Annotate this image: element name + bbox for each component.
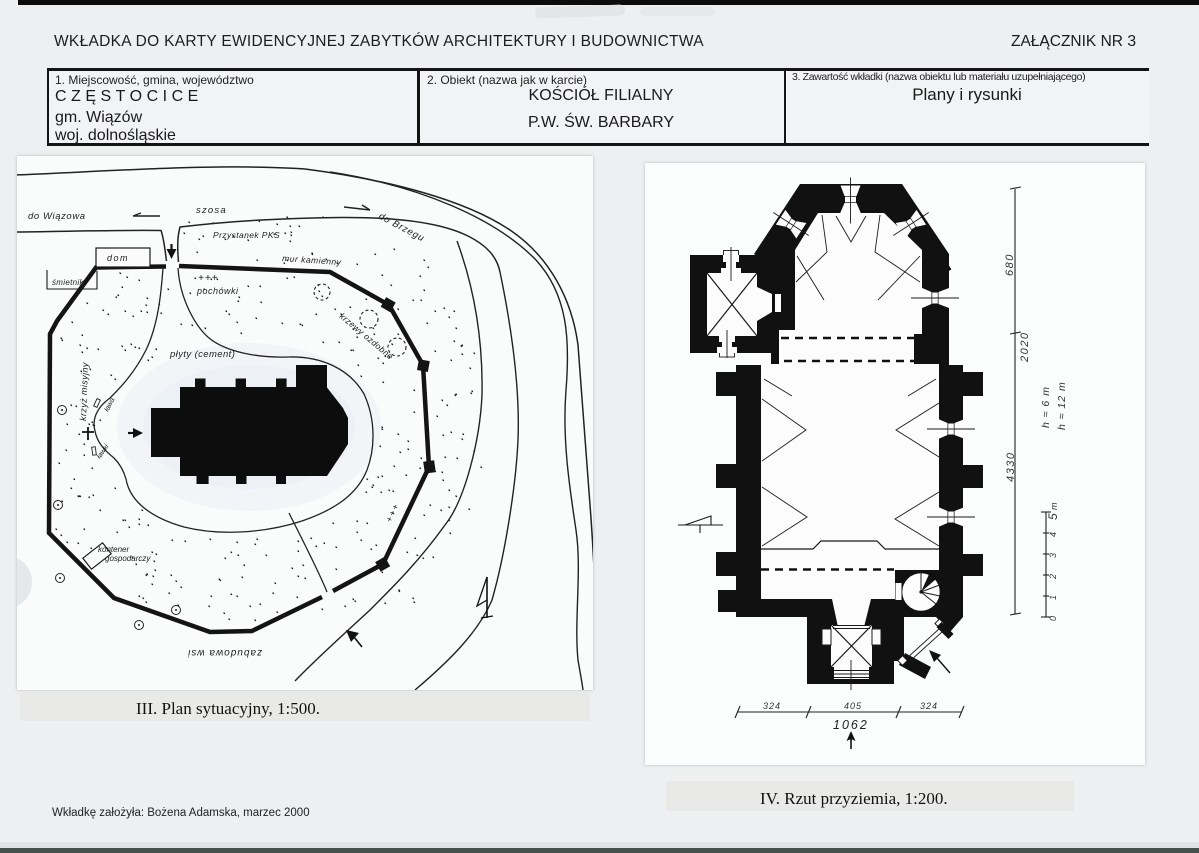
svg-text:0: 0 [1048, 616, 1058, 621]
svg-text:2: 2 [1048, 574, 1058, 580]
svg-text:405: 405 [844, 701, 862, 711]
svg-text:mur kamienny: mur kamienny [282, 253, 342, 267]
svg-text:szosa: szosa [196, 205, 227, 216]
svg-text:680: 680 [1004, 253, 1016, 276]
svg-text:zabudowa wsi: zabudowa wsi [187, 647, 263, 658]
svg-text:1062: 1062 [833, 718, 869, 732]
svg-text:1: 1 [1048, 595, 1058, 600]
svg-text:do Wiązowa: do Wiązowa [28, 211, 86, 222]
svg-text:5 m: 5 m [1046, 502, 1060, 520]
svg-text:+++: +++ [198, 273, 219, 284]
svg-text:324: 324 [763, 701, 781, 711]
svg-text:krzewy ozdobne: krzewy ozdobne [338, 311, 396, 362]
svg-text:4330: 4330 [1005, 452, 1017, 482]
svg-text:do Brzegu: do Brzegu [377, 211, 427, 244]
svg-text:pochówki: pochówki [196, 286, 239, 296]
svg-text:4: 4 [1048, 532, 1058, 537]
svg-text:h ≈ 6 m: h ≈ 6 m [1040, 386, 1052, 428]
svg-text:3: 3 [1048, 553, 1058, 558]
svg-text:2020: 2020 [1019, 332, 1031, 363]
svg-text:Przystanek PKS: Przystanek PKS [213, 230, 280, 240]
svg-text:gospodarczy: gospodarczy [105, 554, 151, 563]
svg-text:kontener: kontener [98, 545, 129, 554]
svg-text:ławki: ławki [96, 443, 111, 460]
svg-text:śmietnik: śmietnik [52, 278, 84, 287]
svg-text:324: 324 [920, 701, 938, 711]
svg-text:h ≈ 12 m: h ≈ 12 m [1056, 381, 1068, 430]
svg-text:dom: dom [107, 253, 129, 263]
svg-text:płyty (cement): płyty (cement) [169, 349, 235, 360]
svg-text:krzyż misyjny: krzyż misyjny [78, 362, 90, 421]
svg-text:ława: ława [104, 397, 117, 413]
